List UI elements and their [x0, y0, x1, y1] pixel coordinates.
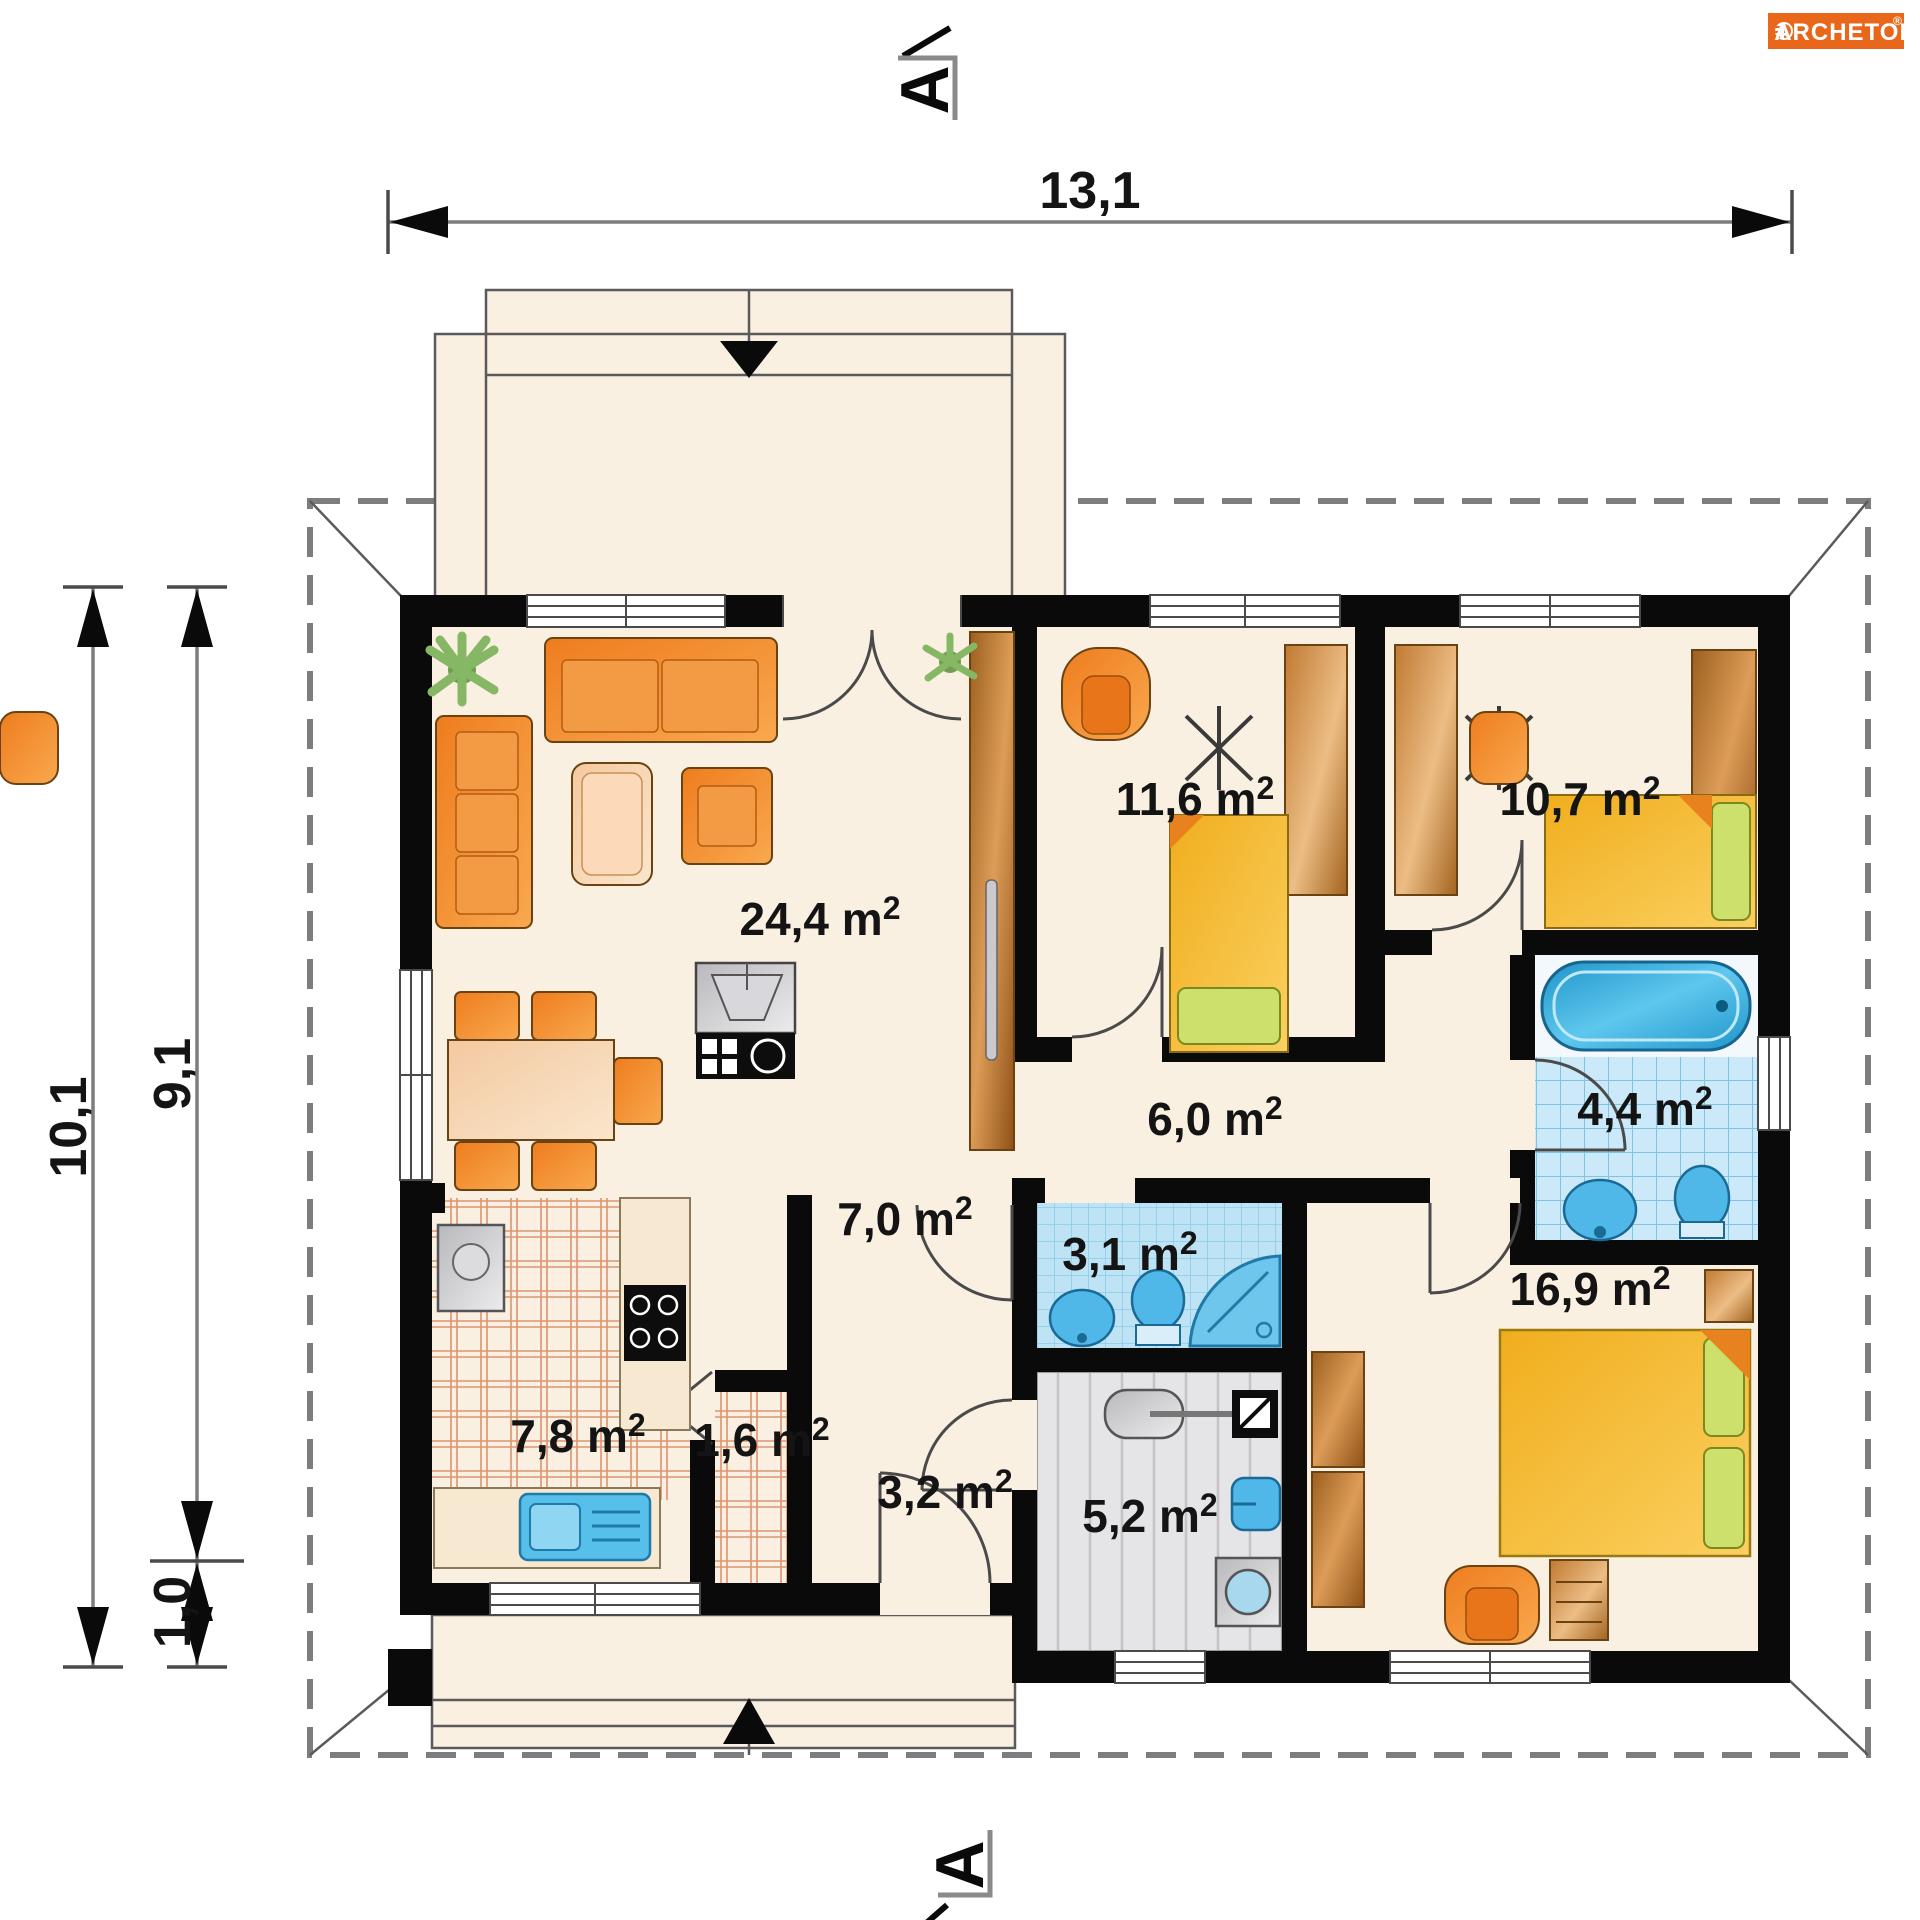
dimension-total-depth-value: 10,1	[40, 1076, 98, 1177]
sink-counter	[434, 1488, 660, 1568]
section-marker-top: A	[887, 28, 963, 120]
window-bedroom-bottom	[1390, 1651, 1590, 1683]
vestibule-area-label: 3,2 m2	[877, 1463, 1012, 1518]
kitchen-counter	[620, 1198, 690, 1430]
dimension-width-value: 13,1	[1039, 162, 1140, 220]
dining-table	[448, 1040, 614, 1140]
utility-area-label: 5,2 m2	[1082, 1487, 1217, 1542]
armchair	[682, 768, 772, 864]
armchair-round	[1062, 648, 1150, 740]
brand-logo: ARCHETON ®	[1768, 13, 1918, 49]
desk	[1285, 645, 1347, 895]
utility-sink	[1232, 1478, 1280, 1530]
bathroom-area-label: 4,4 m2	[1577, 1080, 1712, 1135]
double-bed	[1500, 1330, 1750, 1556]
furnace	[1232, 1390, 1278, 1438]
washing-machine	[1216, 1558, 1280, 1626]
window-living-left	[400, 970, 432, 1180]
dimension-left-house-depth: 9,1 1,0	[144, 587, 244, 1667]
sofa-left	[436, 716, 532, 928]
pantry-area-label: 1,6 m2	[694, 1411, 829, 1466]
window-bedroom-right-top	[1460, 595, 1640, 627]
desk-2	[1395, 645, 1457, 895]
dimension-house-depth-value: 9,1	[144, 1038, 202, 1110]
dresser	[1550, 1560, 1608, 1640]
window-bathroom-right	[1758, 1037, 1790, 1130]
bath-sink	[1564, 1180, 1636, 1240]
bedroom-main-area-label: 16,9 m2	[1509, 1260, 1670, 1315]
window-utility-bottom	[1115, 1651, 1205, 1683]
section-marker-bottom: A	[915, 1830, 998, 1920]
wardrobe-main-1	[1312, 1352, 1364, 1467]
nightstand	[1705, 1270, 1753, 1322]
section-letter-bottom: A	[922, 1840, 998, 1889]
hall-area-label: 7,0 m2	[837, 1190, 972, 1245]
kitchen-area-label: 7,8 m2	[510, 1407, 645, 1462]
single-bed	[1170, 815, 1288, 1052]
wc-sink	[1050, 1290, 1114, 1346]
dimension-terrace-depth-value: 1,0	[144, 1576, 202, 1648]
terrace	[388, 1615, 1015, 1755]
wc-toilet	[1132, 1270, 1184, 1345]
window-living-top	[527, 595, 725, 627]
fridge	[438, 1225, 504, 1311]
bath-toilet	[1675, 1166, 1729, 1238]
porch-column	[388, 1649, 432, 1706]
fireplace-stove	[696, 963, 795, 1079]
hall-wardrobe	[970, 632, 1014, 1150]
logo-registered-mark: ®	[1893, 14, 1902, 28]
sofa-top	[545, 638, 777, 742]
corridor-area-label: 6,0 m2	[1147, 1090, 1282, 1145]
entrance-porch	[435, 290, 1065, 600]
wardrobe-main-2	[1312, 1472, 1364, 1607]
wc-area-label: 3,1 m2	[1062, 1225, 1197, 1280]
bedroom-armchair	[1445, 1566, 1539, 1644]
bedroom-top-area-label: 11,6 m2	[1116, 770, 1274, 825]
dimension-top-width: 13,1	[388, 162, 1792, 254]
floor-plan-page: 24,4 m2 11,6 m2 10,7 m2 4,4 m2 6,0 m2 7,…	[0, 0, 1920, 1920]
window-kitchen-bottom	[490, 1583, 700, 1615]
section-letter-top: A	[887, 65, 963, 114]
floor-plan-drawing: 24,4 m2 11,6 m2 10,7 m2 4,4 m2 6,0 m2 7,…	[0, 0, 1920, 1920]
bedroom-right-area-label: 10,7 m2	[1499, 770, 1660, 825]
bathtub	[1542, 962, 1750, 1050]
cooktop	[624, 1285, 686, 1361]
living-room-area-label: 24,4 m2	[739, 890, 900, 945]
window-bedroom-top	[1150, 595, 1340, 627]
coffee-table	[572, 763, 652, 885]
